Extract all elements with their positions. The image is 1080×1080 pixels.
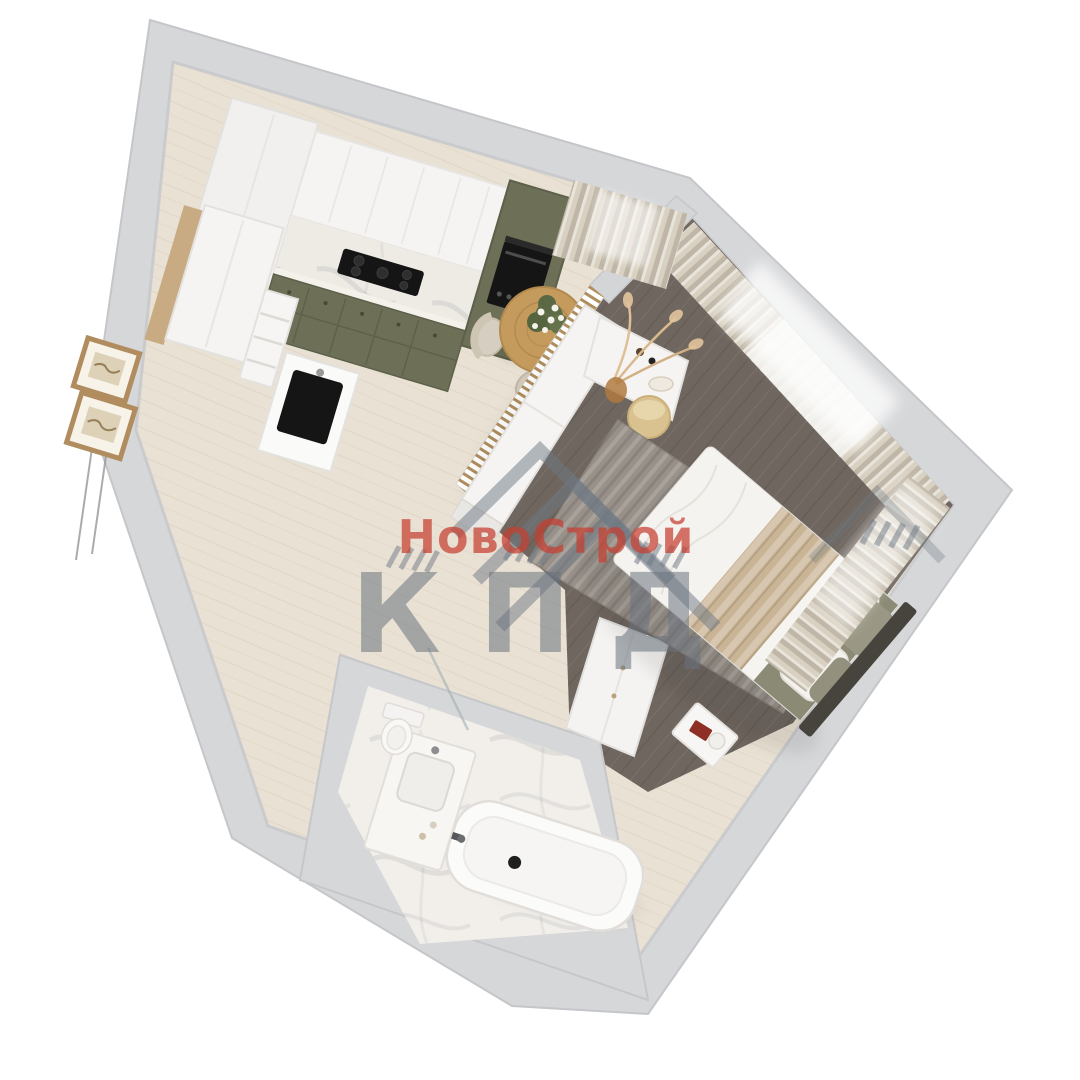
watermark-subtitle: КПД (351, 550, 745, 678)
floorplan-page: НовоСтрой КПД (0, 0, 1080, 1080)
floorplan-render: НовоСтрой КПД (0, 0, 1080, 1080)
amber-vase (605, 377, 627, 403)
